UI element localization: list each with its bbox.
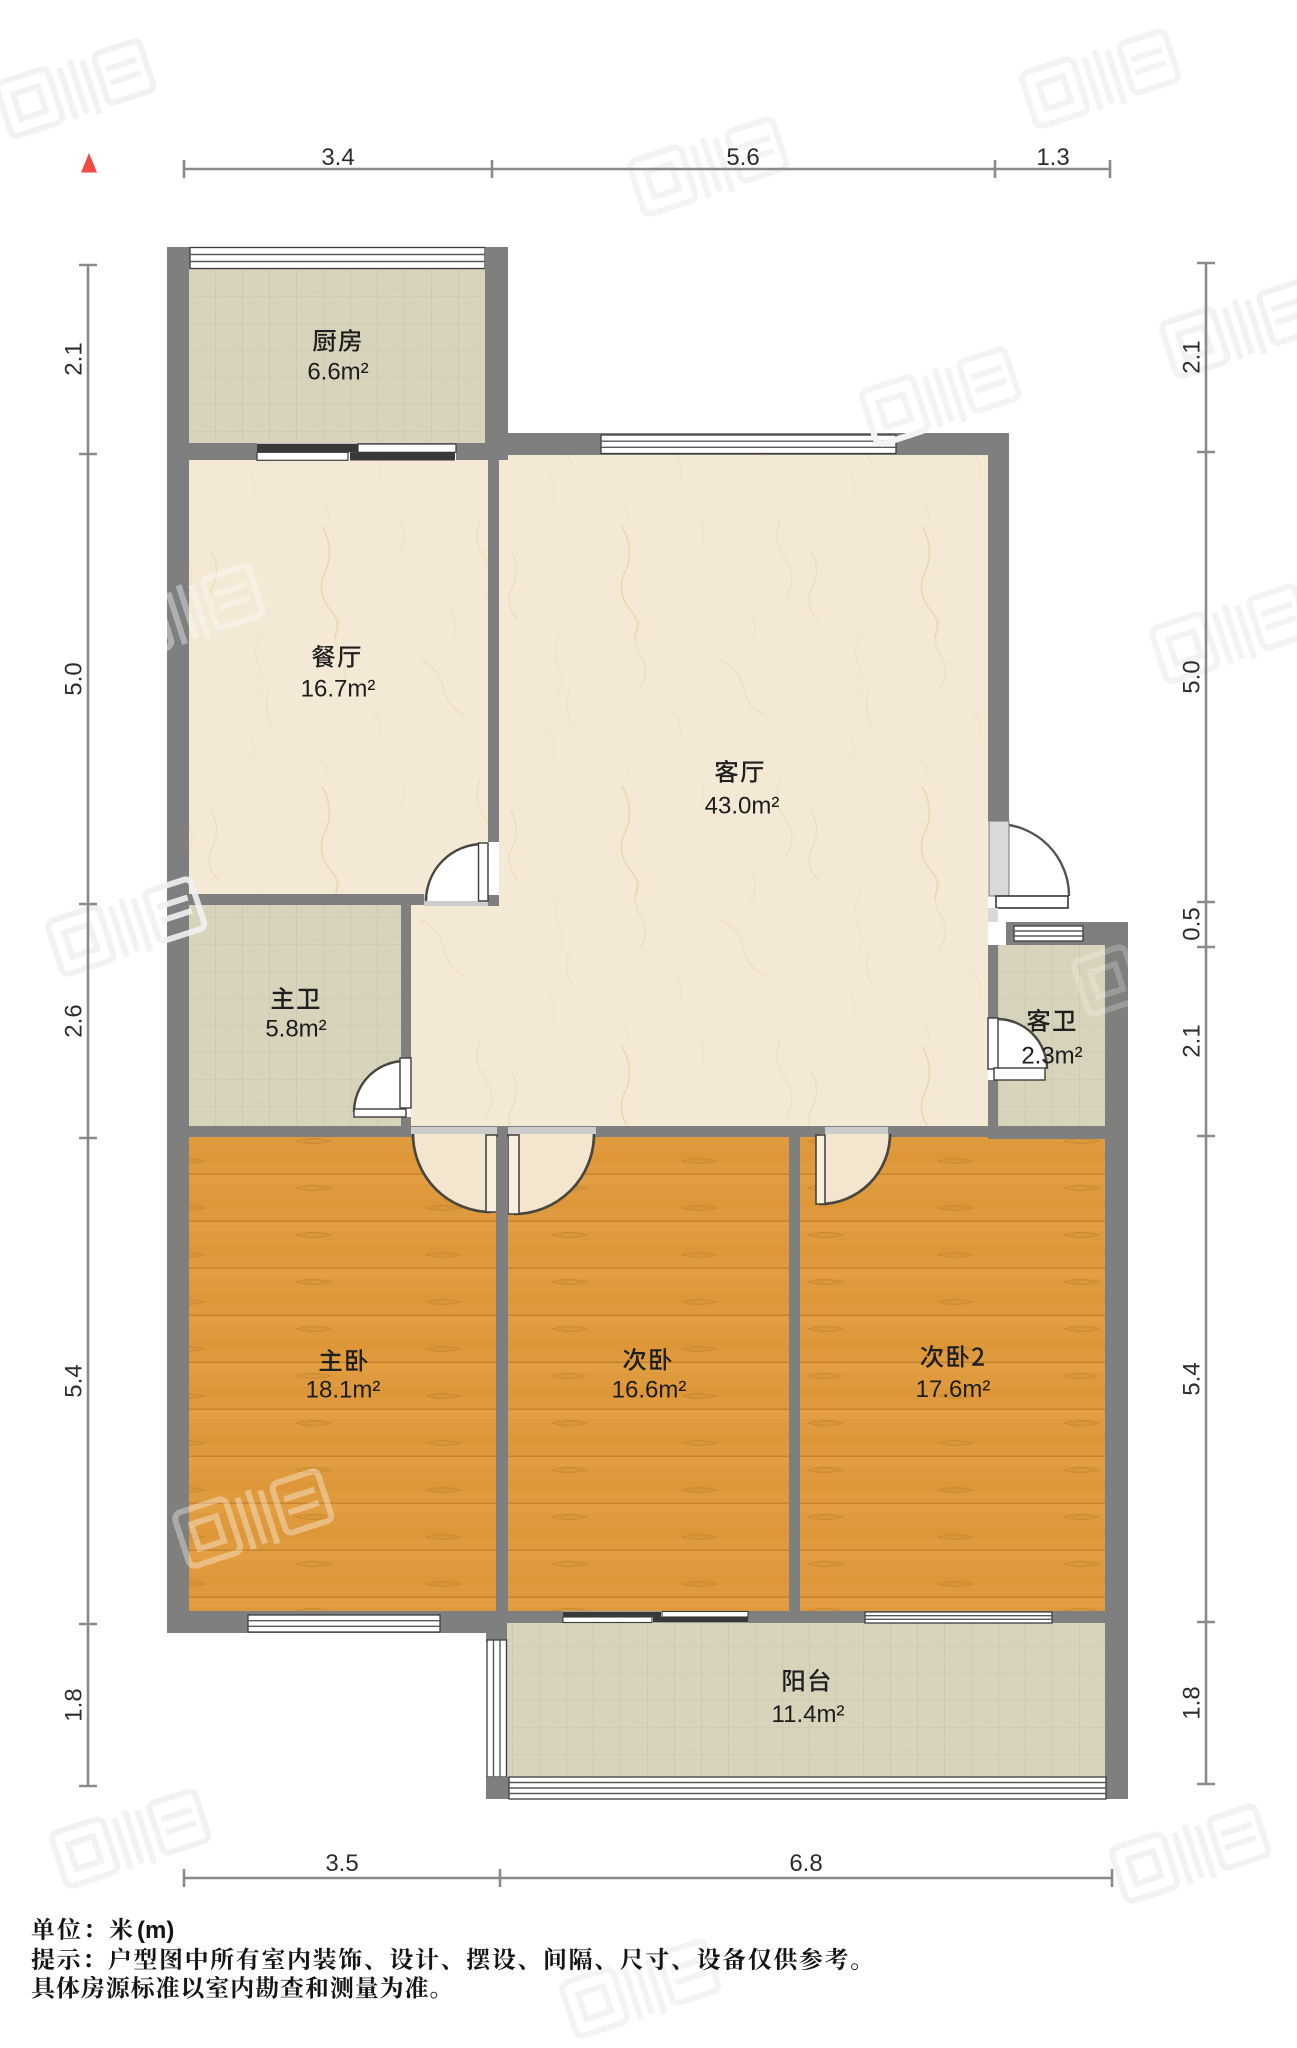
svg-text:2.1: 2.1 [61,342,88,375]
svg-text:1.3: 1.3 [1036,144,1069,171]
svg-text:2.1: 2.1 [1179,1024,1206,1057]
svg-text:1.8: 1.8 [61,1688,88,1721]
svg-text:5.4: 5.4 [1179,1362,1206,1395]
svg-text:3.5: 3.5 [325,1850,358,1877]
svg-text:6.8: 6.8 [789,1850,822,1877]
svg-text:16.7m²: 16.7m² [301,676,376,703]
svg-text:5.8m²: 5.8m² [265,1016,326,1043]
svg-text:2.1: 2.1 [1179,340,1206,373]
svg-text:(m): (m) [137,1917,174,1944]
svg-text:11.4m²: 11.4m² [772,1701,845,1728]
svg-text:43.0m²: 43.0m² [705,793,780,820]
svg-text:2.3m²: 2.3m² [1021,1043,1082,1070]
svg-text:17.6m²: 17.6m² [916,1376,991,1403]
svg-text:18.1m²: 18.1m² [306,1377,381,1404]
svg-text:5.0: 5.0 [1179,660,1206,693]
svg-text:5.0: 5.0 [61,662,88,695]
svg-text:2.6: 2.6 [61,1004,88,1037]
svg-text:6.6m²: 6.6m² [307,359,368,386]
svg-text:0.5: 0.5 [1179,907,1206,940]
svg-text:1.8: 1.8 [1179,1686,1206,1719]
svg-text:3.4: 3.4 [321,144,354,171]
svg-text:5.6: 5.6 [726,144,759,171]
svg-text:5.4: 5.4 [61,1364,88,1397]
svg-text:16.6m²: 16.6m² [612,1377,687,1404]
